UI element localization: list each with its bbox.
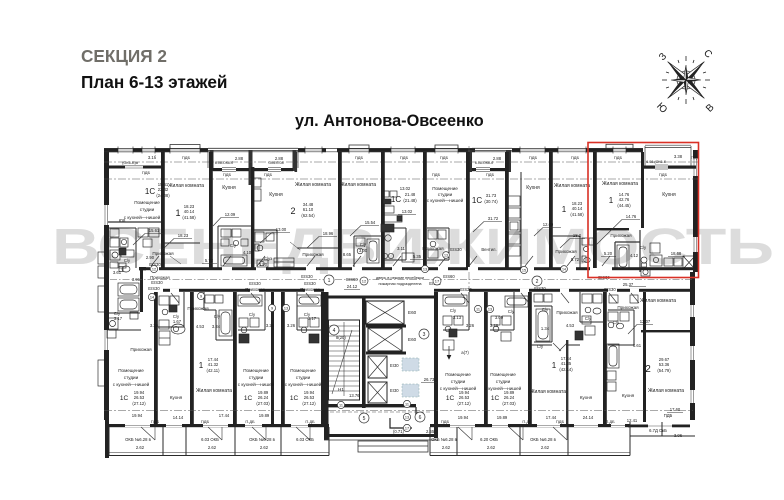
svg-text:6.61: 6.61 [633, 343, 642, 348]
svg-text:с кухней—нишей: с кухней—нишей [124, 214, 161, 220]
svg-text:17: 17 [435, 279, 440, 284]
svg-text:8(20): 8(20) [336, 335, 346, 340]
svg-text:Прихожая: Прихожая [187, 306, 209, 311]
svg-text:Жилая комната: Жилая комната [648, 388, 684, 394]
svg-text:Жилая комната: Жилая комната [640, 298, 676, 304]
svg-text:61.10: 61.10 [303, 207, 314, 212]
svg-text:Помещение: Помещение [118, 368, 144, 373]
svg-text:(27.12): (27.12) [457, 401, 471, 406]
svg-text:15: 15 [522, 269, 526, 273]
svg-text:4.53: 4.53 [566, 323, 575, 328]
svg-text:6.08-ОК6-б: 6.08-ОК6-б [475, 161, 493, 165]
svg-text:3: 3 [423, 332, 426, 338]
svg-text:Ю8: Ю8 [119, 218, 126, 223]
svg-text:Прихожая: Прихожая [610, 233, 632, 238]
svg-text:П.ДБ: П.ДБ [522, 419, 532, 424]
svg-text:С/у: С/у [537, 344, 544, 349]
svg-text:П.ДБ: П.ДБ [605, 419, 615, 424]
svg-text:Жилая комната: Жилая комната [196, 388, 232, 394]
svg-text:26.24: 26.24 [504, 395, 515, 400]
svg-text:6.7Д ОкБ: 6.7Д ОкБ [649, 428, 667, 433]
svg-text:СЕКЦИЯ 2: СЕКЦИЯ 2 [81, 46, 167, 66]
svg-text:14.14: 14.14 [173, 415, 184, 420]
svg-text:13: 13 [405, 416, 409, 420]
svg-text:ЕI30: ЕI30 [390, 363, 399, 368]
svg-text:18.23: 18.23 [178, 233, 189, 238]
svg-text:дверь в режиме перебежки: дверь в режиме перебежки [376, 276, 424, 280]
svg-text:2.90: 2.90 [146, 255, 155, 260]
svg-text:41.35: 41.35 [561, 361, 572, 366]
svg-text:15.54: 15.54 [365, 220, 376, 225]
svg-text:(62.54): (62.54) [301, 213, 315, 218]
svg-text:ЕIS30: ЕIS30 [249, 281, 261, 286]
svg-text:3.06: 3.06 [674, 433, 683, 438]
svg-text:1: 1 [328, 278, 331, 284]
svg-text:ЕI30: ЕI30 [390, 388, 399, 393]
svg-text:3.26: 3.26 [287, 323, 296, 328]
svg-text:19.94: 19.94 [132, 413, 143, 418]
svg-text:1С: 1С [446, 395, 455, 402]
svg-text:19.89: 19.89 [497, 415, 508, 420]
svg-text:С/у: С/у [508, 309, 515, 314]
svg-text:Жилая комната: Жилая комната [554, 183, 590, 189]
svg-text:ЕIS30: ЕIS30 [460, 287, 472, 292]
svg-text:12.09: 12.09 [225, 212, 236, 217]
svg-text:Вентил.: Вентил. [481, 247, 496, 252]
svg-text:31.72: 31.72 [488, 216, 499, 221]
svg-text:ЕIS60: ЕIS60 [346, 277, 358, 282]
svg-text:13.76: 13.76 [349, 393, 360, 398]
svg-text:3.26: 3.26 [466, 323, 475, 328]
svg-text:студии: студии [140, 207, 155, 212]
svg-text:Прихожая: Прихожая [130, 347, 152, 352]
svg-text:С/у: С/у [249, 312, 256, 317]
svg-text:1С: 1С [145, 187, 155, 196]
svg-text:ПДБ: ПДБ [264, 172, 273, 177]
svg-text:Жилая комната: Жилая комната [530, 389, 566, 395]
svg-text:17.44: 17.44 [219, 413, 230, 418]
svg-text:Прихожая: Прихожая [555, 249, 577, 254]
svg-text:12: 12 [152, 268, 156, 272]
svg-text:Кухня: Кухня [269, 192, 283, 198]
svg-text:Прихожая: Прихожая [556, 310, 578, 315]
svg-text:пожарная подразделена: пожарная подразделена [378, 282, 422, 286]
svg-text:3.61: 3.61 [113, 270, 122, 275]
svg-text:2: 2 [536, 279, 539, 285]
svg-text:24.14: 24.14 [583, 415, 594, 420]
svg-text:(27.12): (27.12) [302, 401, 316, 406]
svg-text:С/у: С/у [124, 258, 131, 263]
svg-text:ПДБ: ПДБ [440, 155, 449, 160]
svg-text:26.53: 26.53 [134, 395, 145, 400]
svg-text:3.1б: 3.1б [148, 155, 157, 160]
svg-text:Кухня: Кухня [662, 192, 676, 198]
svg-text:студии: студии [124, 375, 139, 380]
svg-text:Помещение: Помещение [490, 372, 516, 377]
svg-text:ПДБ: ПДБ [486, 172, 495, 177]
svg-text:(30.74): (30.74) [484, 199, 498, 204]
svg-text:2.88: 2.88 [493, 156, 502, 161]
svg-text:2: 2 [290, 206, 295, 216]
svg-text:ПДБ: ПДБ [571, 155, 580, 160]
svg-text:ПДБ: ПДБ [223, 172, 232, 177]
svg-text:3.91: 3.91 [132, 277, 141, 282]
svg-text:П.ДБ: П.ДБ [245, 419, 255, 424]
svg-text:1С: 1С [491, 395, 500, 402]
svg-text:2.88: 2.88 [235, 156, 244, 161]
svg-text:40.14: 40.14 [572, 206, 583, 211]
svg-text:ЕIS30: ЕIS30 [151, 280, 163, 285]
svg-text:ЕIS30: ЕIS30 [148, 286, 160, 291]
svg-text:ПДБ: ПДБ [151, 419, 160, 424]
svg-text:Кухня: Кухня [170, 395, 183, 400]
svg-text:53.36: 53.36 [659, 362, 670, 367]
svg-text:ул. Антонова-Овсеенко: ул. Антонова-Овсеенко [295, 112, 484, 130]
svg-text:Жилая комната: Жилая комната [340, 182, 376, 188]
svg-text:ОКБ №6.28 в: ОКБ №6.28 в [431, 437, 457, 442]
svg-text:1.90: 1.90 [259, 262, 268, 267]
svg-text:С/у: С/у [304, 312, 311, 317]
svg-text:Кухня: Кухня [622, 393, 635, 398]
svg-text:26.53: 26.53 [459, 395, 470, 400]
svg-text:2: 2 [645, 364, 651, 375]
svg-text:2.62: 2.62 [260, 445, 269, 450]
svg-text:ПДБ: ПДБ [529, 155, 538, 160]
svg-text:Жилая комната: Жилая комната [602, 181, 638, 187]
svg-text:9: 9 [200, 295, 202, 299]
svg-text:2.62: 2.62 [136, 445, 145, 450]
svg-text:1.67: 1.67 [173, 319, 182, 324]
svg-text:П.ДБ: П.ДБ [305, 419, 315, 424]
svg-text:11: 11 [339, 404, 343, 408]
svg-text:6.08-(ОК6-б: 6.08-(ОК6-б [646, 160, 666, 164]
svg-text:42.76: 42.76 [619, 197, 630, 202]
svg-text:1С: 1С [290, 395, 299, 402]
svg-text:6.20 ОКБ: 6.20 ОКБ [480, 437, 498, 442]
svg-text:с кухней—нишей: с кухней—нишей [285, 381, 322, 387]
svg-text:Прихожая: Прихожая [300, 287, 319, 292]
svg-text:ЕIS30: ЕIS30 [604, 287, 616, 292]
svg-text:1: 1 [562, 205, 567, 214]
svg-text:1: 1 [552, 361, 557, 370]
svg-text:1: 1 [175, 208, 180, 218]
svg-text:41.32: 41.32 [208, 362, 219, 367]
svg-text:ЕIS60: ЕIS60 [443, 274, 455, 279]
svg-text:3.00: 3.00 [359, 248, 368, 253]
svg-text:26.73: 26.73 [424, 377, 435, 382]
svg-text:с кухней—нишей: с кухней—нишей [427, 197, 464, 203]
svg-text:ЕIS30: ЕIS30 [304, 281, 316, 286]
svg-text:11: 11 [405, 403, 409, 407]
svg-text:Жилая комната: Жилая комната [168, 183, 204, 189]
svg-text:С/у: С/у [214, 314, 221, 319]
svg-text:Помещение: Помещение [134, 200, 160, 205]
svg-text:(27.12): (27.12) [132, 401, 146, 406]
svg-text:С/у: С/у [450, 308, 457, 313]
svg-text:Кухня: Кухня [580, 395, 593, 400]
svg-text:ПДБ: ПДБ [142, 170, 151, 175]
svg-text:Кухня: Кухня [526, 185, 540, 191]
svg-text:Помещение: Помещение [290, 368, 316, 373]
svg-text:ПДБ: ПДБ [664, 413, 673, 418]
svg-text:4.12: 4.12 [630, 253, 639, 258]
svg-text:8.65: 8.65 [343, 252, 352, 257]
svg-text:(41.58): (41.58) [570, 212, 584, 217]
svg-text:Жилая комната: Жилая комната [295, 182, 331, 188]
svg-text:ЕIS30: ЕIS30 [301, 274, 313, 279]
svg-text:14: 14 [150, 296, 154, 300]
svg-text:26.24: 26.24 [258, 395, 269, 400]
svg-text:19.89: 19.89 [259, 413, 270, 418]
svg-text:ЕIS30: ЕIS30 [534, 286, 546, 291]
svg-text:3.17: 3.17 [114, 316, 123, 321]
svg-text:13: 13 [284, 307, 288, 311]
svg-text:2.62: 2.62 [487, 445, 496, 450]
svg-text:2.62: 2.62 [541, 445, 550, 450]
svg-text:40.14: 40.14 [184, 209, 195, 214]
svg-text:Помещение: Помещение [243, 368, 269, 373]
svg-text:14.76: 14.76 [626, 214, 637, 219]
svg-text:с кухней—нишей: с кухней—нишей [238, 381, 275, 387]
svg-text:студии: студии [249, 375, 264, 380]
svg-text:18.2: 18.2 [573, 233, 582, 238]
svg-text:1С: 1С [244, 395, 253, 402]
svg-text:5.72: 5.72 [205, 258, 214, 263]
svg-text:12.07: 12.07 [640, 319, 651, 324]
svg-text:19.94: 19.94 [458, 415, 469, 420]
svg-text:3.11: 3.11 [397, 246, 406, 251]
svg-text:ОКБ №6.28 в: ОКБ №6.28 в [249, 437, 275, 442]
svg-text:1С: 1С [120, 395, 129, 402]
svg-text:ПДБ: ПДБ [355, 155, 364, 160]
svg-text:(ОК6-Б)а: (ОК6-Б)а [122, 161, 139, 165]
svg-text:2.62: 2.62 [442, 445, 451, 450]
svg-text:ПДБ: ПДБ [441, 419, 450, 424]
svg-text:12.09: 12.09 [543, 222, 554, 227]
svg-text:(42.14): (42.14) [559, 367, 573, 372]
svg-text:1: 1 [199, 361, 204, 370]
svg-text:С/у: С/у [640, 245, 647, 250]
svg-text:2.62: 2.62 [208, 445, 217, 450]
svg-text:С/у: С/у [114, 311, 121, 316]
svg-text:(27.03): (27.03) [256, 401, 270, 406]
svg-text:17: 17 [405, 427, 409, 431]
svg-text:4: 4 [333, 328, 336, 334]
svg-text:с кухней—нишей: с кухней—нишей [113, 381, 150, 387]
svg-text:(42.11): (42.11) [207, 368, 221, 373]
svg-text:31.73: 31.73 [486, 193, 497, 198]
svg-text:Прихожая: Прихожая [152, 251, 174, 256]
svg-text:Прихожая: Прихожая [617, 305, 639, 310]
svg-text:24.12: 24.12 [347, 284, 358, 289]
svg-text:13.02: 13.02 [400, 186, 411, 191]
svg-text:6.03 ОКБ: 6.03 ОКБ [296, 437, 314, 442]
svg-text:13: 13 [444, 254, 448, 258]
svg-text:С/у: С/у [173, 314, 180, 319]
svg-text:а(7): а(7) [461, 350, 469, 355]
svg-text:9: 9 [271, 307, 273, 311]
svg-text:13.02: 13.02 [402, 209, 413, 214]
svg-text:(24.08): (24.08) [156, 193, 170, 198]
svg-text:(27.03): (27.03) [502, 401, 516, 406]
svg-text:ПДБ: ПДБ [201, 419, 210, 424]
svg-text:15.61: 15.61 [149, 228, 160, 233]
svg-text:ПДБ: ПДБ [659, 172, 668, 177]
svg-text:ПДБ: ПДБ [556, 419, 565, 424]
svg-text:2.65: 2.65 [426, 429, 435, 434]
svg-text:13: 13 [423, 268, 427, 272]
svg-text:Прихожая: Прихожая [245, 287, 264, 292]
svg-text:(0.71): (0.71) [393, 429, 405, 434]
svg-text:ОКБ №6.28 в: ОКБ №6.28 в [125, 437, 151, 442]
svg-text:5.72: 5.72 [571, 257, 580, 262]
svg-text:Е60: Е60 [408, 337, 417, 342]
svg-text:5.20: 5.20 [604, 251, 613, 256]
svg-text:1С: 1С [472, 196, 482, 205]
svg-text:1: 1 [609, 196, 614, 205]
svg-text:ЕIS30: ЕIS30 [450, 247, 462, 252]
svg-text:Прихожая: Прихожая [302, 252, 324, 257]
svg-text:студии: студии [438, 192, 453, 197]
svg-text:11: 11 [476, 308, 480, 312]
svg-text:студии: студии [496, 379, 511, 384]
svg-text:студии: студии [451, 379, 466, 384]
svg-text:3.34: 3.34 [212, 324, 221, 329]
svg-text:План 6-13 этажей: План 6-13 этажей [81, 72, 228, 92]
svg-text:26.53: 26.53 [304, 395, 315, 400]
svg-text:18.68: 18.68 [671, 251, 682, 256]
svg-text:12.41: 12.41 [627, 418, 638, 423]
svg-text:6.03 ОКБ: 6.03 ОКБ [201, 437, 219, 442]
svg-text:ОК6-б-08: ОК6-б-08 [268, 161, 283, 165]
svg-text:(41.58): (41.58) [182, 215, 196, 220]
svg-text:Кухня: Кухня [222, 185, 236, 191]
svg-text:6: 6 [419, 415, 422, 421]
svg-text:(21.48): (21.48) [403, 198, 417, 203]
svg-text:13.00: 13.00 [276, 227, 287, 232]
svg-text:ПДБ: ПДБ [182, 155, 191, 160]
svg-text:студии: студии [296, 375, 311, 380]
svg-text:ПДБ: ПДБ [400, 155, 409, 160]
svg-text:Помещение: Помещение [445, 372, 471, 377]
svg-text:ПДБ: ПДБ [614, 155, 623, 160]
svg-text:Помещение: Помещение [432, 186, 458, 191]
svg-text:ПДБ: ПДБ [432, 172, 441, 177]
svg-text:12: 12 [362, 279, 367, 284]
svg-text:14: 14 [562, 268, 566, 272]
svg-text:1С: 1С [391, 195, 401, 204]
svg-text:(54.79): (54.79) [657, 368, 671, 373]
svg-text:1.34: 1.34 [541, 326, 550, 331]
svg-text:Н1: Н1 [338, 387, 344, 392]
svg-text:3.26: 3.26 [150, 323, 159, 328]
svg-text:(44.45): (44.45) [617, 203, 631, 208]
svg-text:3.38: 3.38 [674, 154, 683, 159]
svg-text:ОКБ №6.28 в: ОКБ №6.28 в [530, 437, 556, 442]
svg-text:4.10: 4.10 [243, 250, 252, 255]
svg-text:13: 13 [488, 308, 492, 312]
svg-text:21.48: 21.48 [405, 192, 416, 197]
svg-text:5: 5 [363, 416, 366, 422]
svg-text:Е60: Е60 [408, 310, 417, 315]
svg-text:18.96: 18.96 [323, 231, 334, 236]
svg-text:17.60: 17.60 [670, 407, 681, 412]
svg-text:4.53: 4.53 [196, 324, 205, 329]
svg-text:3.26: 3.26 [266, 323, 275, 328]
svg-text:6.08-ОК6-б: 6.08-ОК6-б [215, 161, 233, 165]
